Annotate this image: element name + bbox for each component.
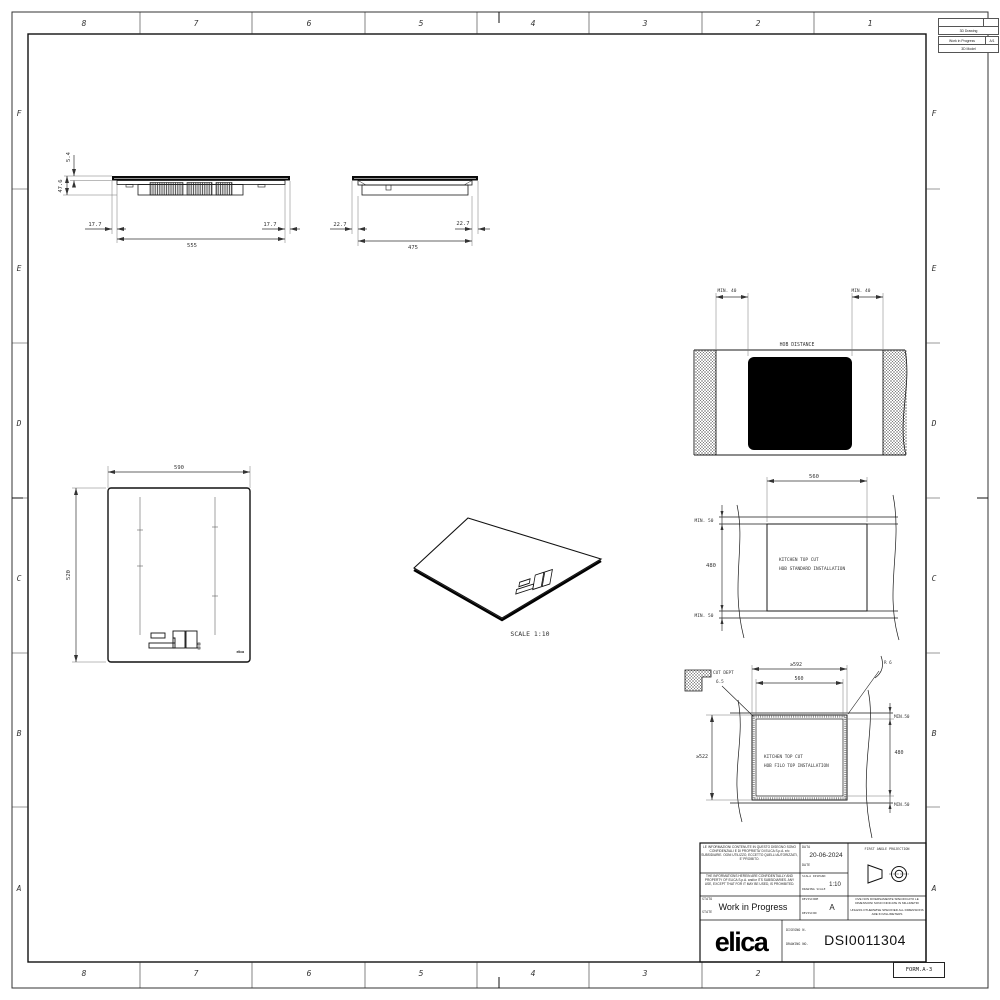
zone-top-2: 2 [756,19,761,28]
isometric-view: SCALE 1:10 [414,518,601,638]
elica-logo: elica [700,926,782,960]
dim-min-front-flush: MIN.50 [894,802,910,808]
dim-overhang-right-side: 22.7 [456,221,469,227]
dim-overhang-left-side: 22.7 [333,222,346,228]
model-type-cell: 3D Model [939,45,998,52]
zone-right-e: E [932,264,937,273]
confidential-note-en: THE INFORMATIONS HEREIN ARE CONFIDENTIAL… [701,874,798,886]
zone-top-3: 3 [642,19,648,28]
doc-type-cell: 3D Drawing [939,27,998,34]
revision-cell-empty [939,19,983,26]
flush-cut-diagram: ≥592 560 ≥522 480 MIN.50 MIN.50 R 6 CUT … [685,656,910,838]
zone-bottom-8: 8 [82,969,87,978]
zone-top-7: 7 [194,19,199,28]
dim-top-width: 590 [174,465,184,471]
dim-corner-radius: R 6 [884,660,892,666]
zone-bottom-7: 7 [194,969,199,978]
zone-right-d: D [931,419,937,428]
flush-cut-label-1: KITCHEN TOP CUT [764,754,803,760]
dim-min-right: MIN. 40 [852,288,871,294]
zone-top-1: 1 [868,19,873,28]
zone-bottom-4: 4 [531,969,536,978]
zone-right-f: F [932,109,937,118]
vent-grilles [150,183,232,196]
drawing-number: DSI0011304 [808,932,922,950]
zone-left-d: D [16,419,22,428]
data-label: DATA [802,845,810,849]
dim-outer-depth: ≥522 [696,754,708,760]
stato-label: STATO [702,897,712,901]
dim-body-depth: 475 [408,245,418,251]
zone-top-6: 6 [307,19,312,28]
standard-cut-label-1: KITCHEN TOP CUT [779,557,819,563]
dim-glass-thickness: 5.4 [66,151,72,162]
dim-min-front: MIN. 50 [695,613,714,619]
zone-bottom-2: 2 [756,969,761,978]
zone-left-f: F [17,109,22,118]
zone-top-8: 8 [82,19,87,28]
zone-bottom-6: 6 [307,969,312,978]
drawing-sheet: 8 7 6 5 4 3 2 1 8 7 6 5 4 3 2 F E D C B … [0,0,1000,1000]
dim-total-height: 47.6 [58,179,64,192]
zone-right-a: A [931,884,937,893]
date-value: 20-06-2024 [805,852,847,860]
dim-body-width: 555 [187,243,197,249]
dim-inner-width: 560 [794,676,803,682]
iso-scale-label: SCALE 1:10 [510,630,549,638]
hob-distance-diagram: MIN. 40 MIN. 40 HOB DISTANCE [694,288,907,455]
disegno-label: DISEGNO N. [786,928,806,932]
cut-dept-label: CUT DEPT [713,670,734,676]
dim-cut-width: 560 [809,474,819,480]
revision-value: A [820,903,844,913]
zone-bottom-5: 5 [419,969,424,978]
zone-left-e: E [17,264,22,273]
hob-body-black [748,357,852,450]
zone-right-b: B [932,729,937,738]
revision-label: REVISION [802,912,816,916]
dim-overhang-left: 17.7 [88,222,101,228]
dim-cut-depth: 480 [706,563,716,569]
revision-table-top: 3D Drawing [938,18,999,35]
counter-section-left [695,351,716,455]
zone-left-c: C [17,574,22,583]
cut-depth-detail [685,670,711,691]
units-note-it: OVE NON DIVERSAMENTE SPECIFICATO LE DIME… [850,898,924,906]
drawing-no-label: DRAWING NO. [786,942,808,946]
brand-mark-top-view: elica [236,650,244,654]
projection-label: FIRST ANGLE PROJECTION [849,847,925,851]
zone-left-a: A [16,884,22,893]
dim-min-left: MIN. 40 [718,288,737,294]
first-angle-projection-icon [868,865,909,883]
side-view-side: 475 22.7 22.7 [330,176,490,251]
cut-dept-value: 6.5 [716,679,724,685]
units-note-en: UNLESS OTHERWISE SPECIFIED ALL DIMENSION… [850,909,924,917]
standard-cut-label-2: HOB STANDARD INSTALLATION [779,566,845,572]
hob-outline-top [108,488,250,662]
dim-overhang-right: 17.7 [263,222,276,228]
scale-value: 1:10 [824,882,846,890]
zone-bottom-3: 3 [642,969,648,978]
standard-cut-diagram: 560 480 MIN. 50 MIN. 50 KITCHEN TOP CUT … [695,474,899,640]
hob-distance-title: HOB DISTANCE [780,342,815,348]
side-view-front: 555 17.7 17.7 47.6 5.4 [58,151,300,488]
zone-top-5: 5 [419,19,424,28]
dim-top-depth: 520 [66,570,72,580]
dim-outer-width: ≥592 [790,662,802,668]
status-value: Work in Progress [708,902,798,913]
top-view: elica 590 520 [66,465,250,662]
scala-label: SCALA DISEGNO [802,875,825,879]
revision-cell-empty-2 [983,19,998,26]
flush-cut-label-2: HOB FILO TOP INSTALLATION [764,763,829,769]
confidential-note-it: LE INFORMAZIONI CONTENUTE IN QUESTO DISE… [701,845,798,861]
zone-left-b: B [17,729,22,738]
dim-min-back: MIN. 50 [695,518,714,524]
revision-table-bottom: Work in Progress A/1 3D Model [938,36,999,53]
drawing-scale-label: DRAWING SCALE [802,888,825,892]
status-cell: Work in Progress [939,37,985,44]
hob-top-face [414,518,601,618]
dim-min-back-flush: MIN.50 [894,714,910,720]
form-label: FORM.A-3 [893,962,945,978]
dim-inner-depth: 480 [894,750,903,756]
zone-top-4: 4 [531,19,536,28]
zone-right-c: C [932,574,937,583]
sheet-ref-cell: A/1 [985,37,998,44]
revisione-label: REVISIONE [802,898,818,902]
date-label: DATE [802,863,810,867]
